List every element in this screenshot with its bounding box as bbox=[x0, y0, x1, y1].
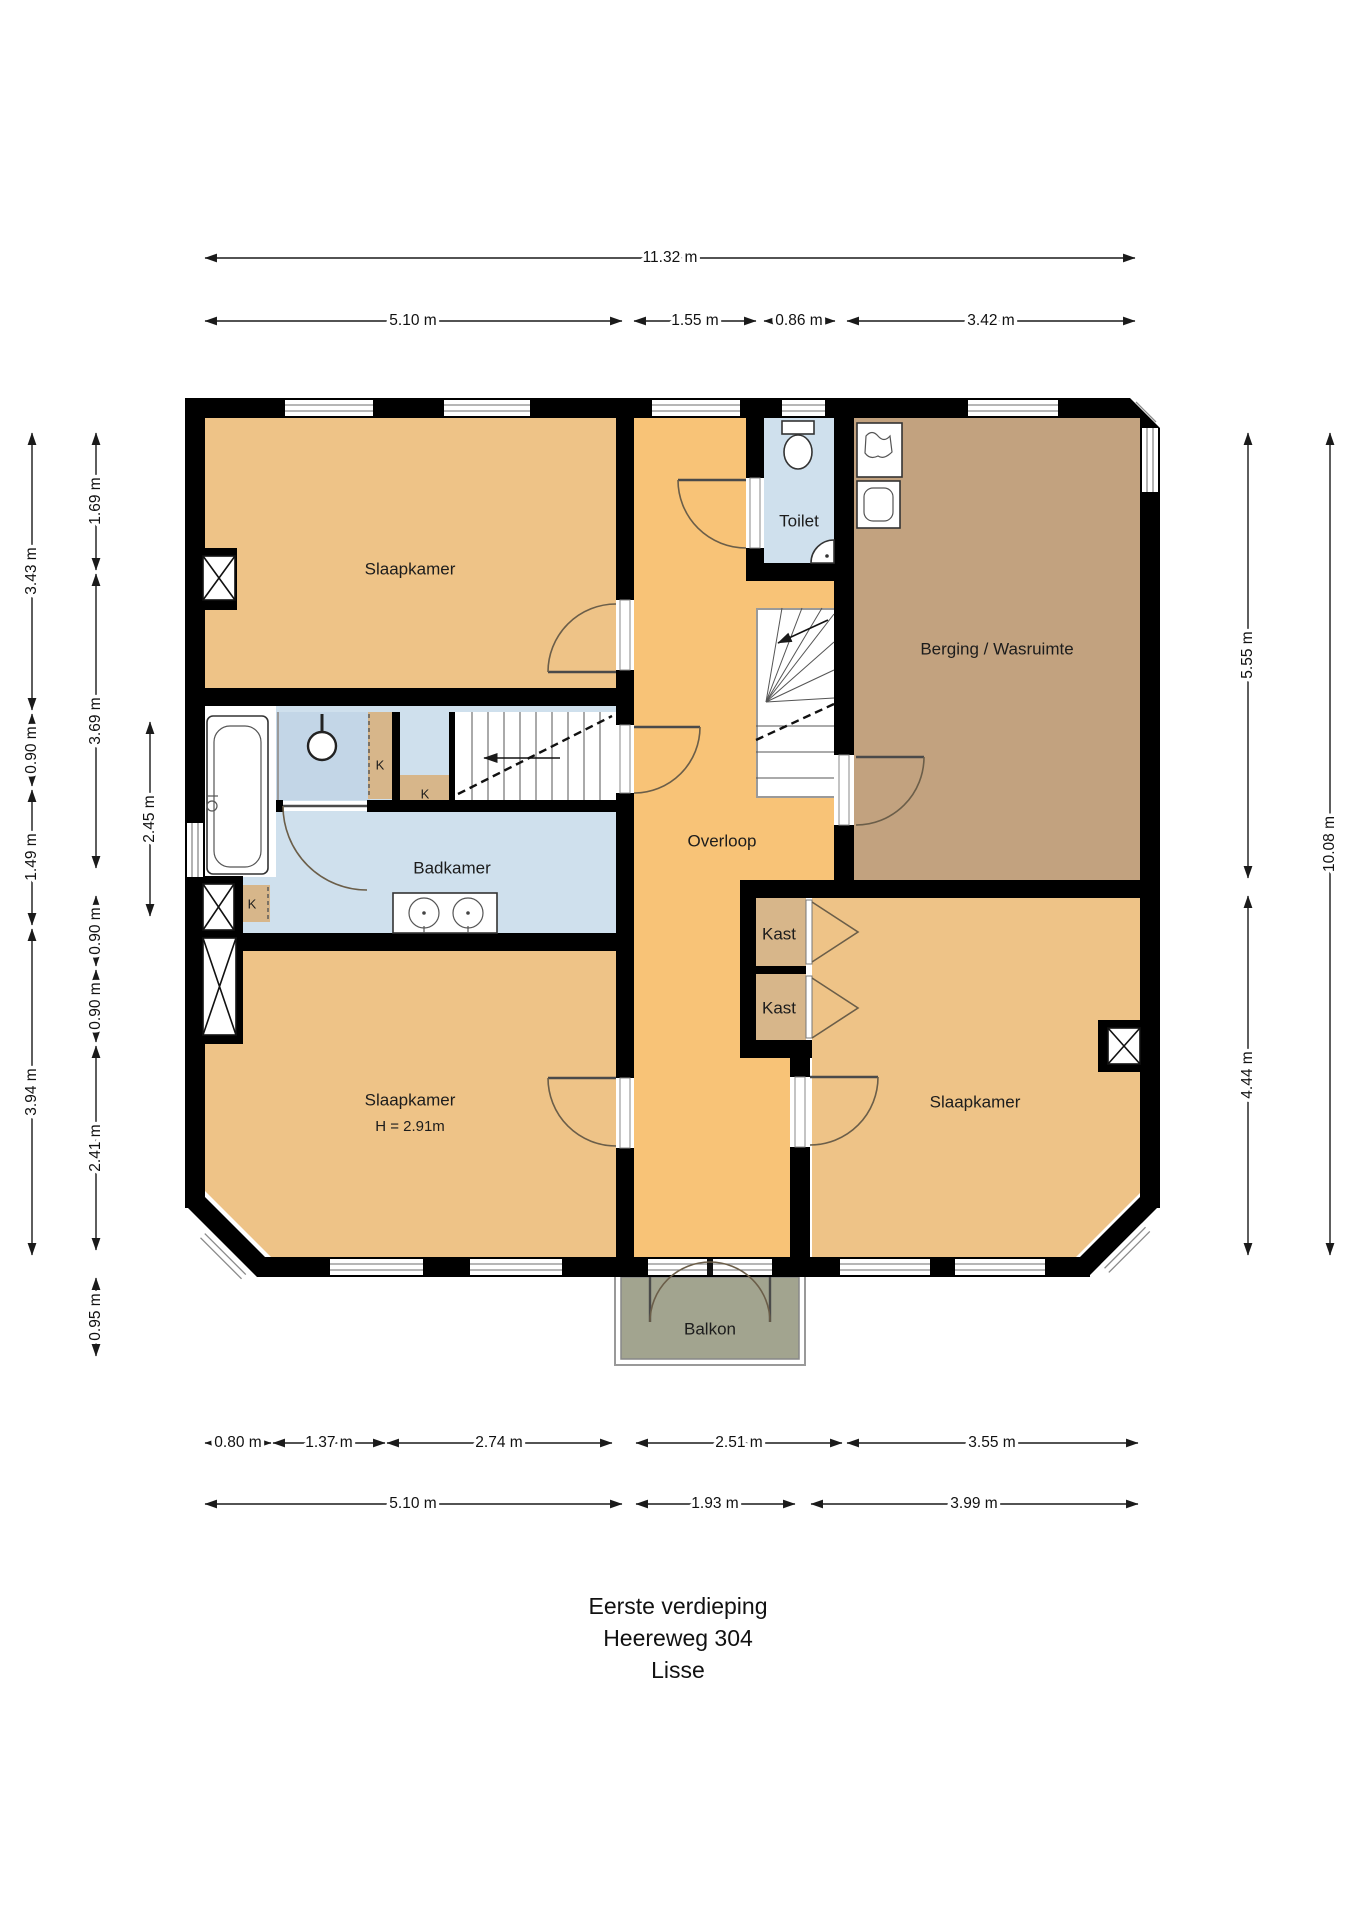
title-floor: Eerste verdieping bbox=[589, 1593, 768, 1619]
window-bottom-4 bbox=[955, 1259, 1045, 1275]
dim-overall-width: 11.32 m bbox=[643, 249, 698, 266]
window-top-4 bbox=[782, 400, 825, 416]
dim-bottom-lower-1: 1.93 m bbox=[691, 1495, 738, 1512]
dim-left-inner-0: 2.45 m bbox=[141, 795, 158, 842]
wall-shower-stub bbox=[276, 800, 283, 812]
wall-kast-divider bbox=[740, 966, 806, 974]
shaft-bathroom bbox=[203, 884, 234, 930]
bedroom-top-left-floor bbox=[205, 418, 616, 688]
dim-top-3: 3.42 m bbox=[967, 312, 1014, 329]
dim-bottom-upper-3: 2.51 m bbox=[715, 1434, 762, 1451]
window-top-3 bbox=[652, 400, 740, 416]
window-top-1 bbox=[285, 400, 373, 416]
toilet-wc bbox=[782, 421, 814, 469]
bedroom-bottom-right-label: Slaapkamer bbox=[930, 1092, 1021, 1111]
dim-left-outer-0: 3.43 m bbox=[23, 547, 40, 594]
window-right-storage bbox=[1142, 428, 1158, 492]
shaft-bedroom-bottom-left bbox=[203, 938, 236, 1035]
dim-bottom-lower-2: 3.99 m bbox=[950, 1495, 997, 1512]
bathtub bbox=[207, 716, 268, 874]
double-sink-vanity bbox=[393, 893, 497, 933]
wall-w2-b bbox=[834, 825, 854, 881]
window-left-bathroom bbox=[187, 823, 203, 877]
title-block: Eerste verdieping Heereweg 304 Lisse bbox=[589, 1593, 768, 1683]
dim-bottom-upper-2: 2.74 m bbox=[475, 1434, 522, 1451]
storage-sink bbox=[857, 423, 902, 477]
storage-label: Berging / Wasruimte bbox=[920, 639, 1073, 658]
stair-main-winder bbox=[756, 608, 834, 798]
balcony-label: Balkon bbox=[684, 1319, 736, 1338]
wall-k-divider bbox=[392, 712, 400, 812]
dim-right-outer-0: 10.08 m bbox=[1321, 816, 1338, 872]
window-bottom-1 bbox=[330, 1259, 423, 1275]
room-fills bbox=[205, 418, 1140, 1257]
toilet-label: Toilet bbox=[779, 511, 819, 530]
wall-h3 bbox=[185, 933, 634, 951]
dim-left-outer-3: 3.94 m bbox=[23, 1068, 40, 1115]
dim-left-mid-4: 2.41 m bbox=[87, 1124, 104, 1171]
shaft-bedroom-top-left bbox=[203, 556, 235, 600]
floorplan-page: Slaapkamer Toilet Berging / Wasruimte Ov… bbox=[0, 0, 1358, 1920]
k-closet-1 bbox=[368, 712, 392, 799]
bedroom-bottom-left-height: H = 2.91m bbox=[375, 1118, 445, 1135]
kast-bottom-door-jamb bbox=[806, 976, 812, 1038]
bedroom-bottom-left-label: Slaapkamer bbox=[365, 1090, 456, 1109]
dim-top-1: 1.55 m bbox=[671, 312, 718, 329]
dim-left-outer-1: 0.90 m bbox=[23, 726, 40, 773]
dim-bottom-upper-0: 0.80 m bbox=[214, 1434, 261, 1451]
title-city: Lisse bbox=[651, 1657, 705, 1683]
dim-top-2: 0.86 m bbox=[775, 312, 822, 329]
k-closet-3-label: K bbox=[248, 896, 257, 911]
dim-left-mid-3: 0.90 m bbox=[87, 982, 104, 1029]
kast-top-label: Kast bbox=[762, 924, 796, 943]
k-closet-1-label: K bbox=[376, 757, 385, 772]
dim-left-mid-5: 0.95 m bbox=[87, 1293, 104, 1340]
dim-bottom-upper-1: 1.37 m bbox=[305, 1434, 352, 1451]
dim-bottom-lower-0: 5.10 m bbox=[389, 1495, 436, 1512]
dim-bottom-upper-4: 3.55 m bbox=[968, 1434, 1015, 1451]
window-top-5 bbox=[968, 400, 1058, 416]
stair-straight-flight bbox=[455, 712, 616, 800]
landing-label: Overloop bbox=[688, 831, 757, 850]
wall-w3-a bbox=[790, 1058, 810, 1077]
wall-kast-bottom bbox=[740, 1040, 812, 1058]
kast-top-door-jamb bbox=[806, 900, 812, 964]
dim-right-inner-0: 5.55 m bbox=[1239, 631, 1256, 678]
kast-bottom-label: Kast bbox=[762, 998, 796, 1017]
bathroom-label: Badkamer bbox=[413, 858, 491, 877]
bedroom-top-left-label: Slaapkamer bbox=[365, 559, 456, 578]
wall-w1-d bbox=[616, 1148, 634, 1257]
dim-right-inner-1: 4.44 m bbox=[1239, 1051, 1256, 1098]
window-bottom-2 bbox=[470, 1259, 562, 1275]
wall-kast-left bbox=[740, 898, 756, 1058]
dim-left-mid-2: 0.90 m bbox=[87, 907, 104, 954]
dim-left-outer-2: 1.49 m bbox=[23, 833, 40, 880]
title-address: Heereweg 304 bbox=[603, 1625, 753, 1651]
dim-left-mid-0: 1.69 m bbox=[87, 477, 104, 524]
floorplan-drawing: Slaapkamer Toilet Berging / Wasruimte Ov… bbox=[0, 0, 1358, 1920]
k-closet-2-label: K bbox=[421, 786, 430, 801]
wall-exterior-left bbox=[185, 398, 205, 1208]
balcony-floor bbox=[621, 1277, 799, 1359]
wall-bath-thin bbox=[367, 800, 616, 812]
dim-top-0: 5.10 m bbox=[389, 312, 436, 329]
wall-exterior-right bbox=[1140, 398, 1160, 1208]
window-top-2 bbox=[444, 400, 530, 416]
wall-w1-a bbox=[616, 418, 634, 600]
washing-machine bbox=[857, 481, 900, 528]
wall-w2-a bbox=[834, 418, 854, 755]
wall-stair-end bbox=[449, 712, 455, 800]
wall-h1 bbox=[185, 688, 634, 706]
dim-left-mid-1: 3.69 m bbox=[87, 697, 104, 744]
window-bottom-3 bbox=[840, 1259, 930, 1275]
wall-storage-bottom bbox=[740, 880, 1160, 898]
wall-w3-b bbox=[790, 1147, 810, 1257]
shaft-bedroom-bottom-right bbox=[1108, 1028, 1140, 1064]
